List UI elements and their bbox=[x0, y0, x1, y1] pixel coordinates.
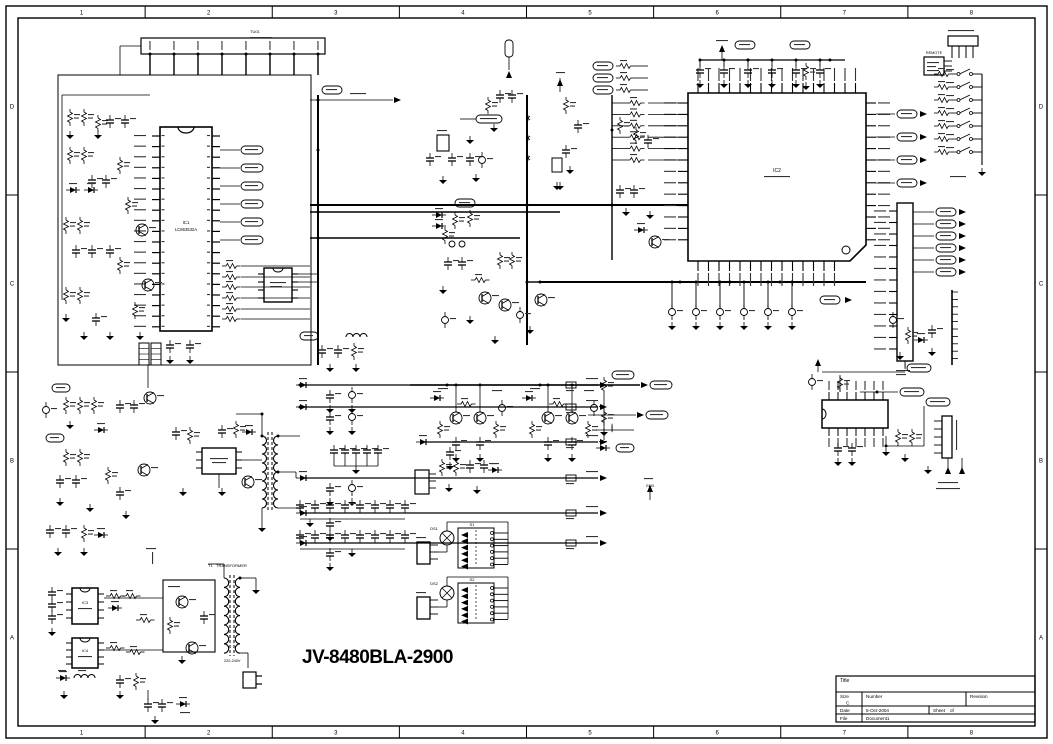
psu-ic4: IC4 bbox=[66, 638, 104, 668]
output-stage-block-1 bbox=[430, 384, 513, 463]
lamp-ds2-label: DS2 bbox=[430, 581, 439, 586]
ic3-ref: IC3 bbox=[82, 600, 89, 605]
mcu-ic1: IC1LC863532A bbox=[134, 127, 220, 331]
title-block: TitleSizeCNumberRevisionDate5-Oct-2004Sh… bbox=[836, 676, 1035, 722]
tuner-module: TU01 bbox=[141, 29, 325, 75]
border-row-right: B bbox=[1039, 459, 1043, 465]
size-value: C bbox=[846, 701, 850, 707]
bus-lines bbox=[310, 86, 866, 365]
border-row-left: A bbox=[10, 636, 14, 642]
switch-s1-label: S1 bbox=[470, 522, 476, 527]
output-stage-block-2 bbox=[522, 384, 605, 463]
qfp-top-parts bbox=[696, 40, 845, 90]
number-label: Number bbox=[866, 694, 883, 699]
qfp-left-parts bbox=[612, 95, 678, 260]
qfp-bottom-caps bbox=[668, 281, 852, 331]
ic4-ref: IC4 bbox=[82, 648, 89, 653]
schematic-drawing: 1122334455667788DDCCBBAATitleSizeCNumber… bbox=[0, 0, 1053, 744]
file-value: Document1 bbox=[866, 716, 890, 721]
gnd-flag-label: GND bbox=[646, 484, 655, 488]
border-row-right: A bbox=[1039, 636, 1043, 642]
av-jack-1: DS1S1 bbox=[416, 522, 508, 570]
border-col-bottom: 8 bbox=[970, 731, 974, 737]
size-label: Size bbox=[840, 694, 849, 699]
av-jack-2: DS2S2 bbox=[416, 577, 508, 625]
front-panel: REMOTE bbox=[924, 30, 986, 177]
border-col-bottom: 3 bbox=[334, 731, 338, 737]
schematic-page: 1122334455667788DDCCBBAATitleSizeCNumber… bbox=[0, 0, 1053, 744]
mcu-section: TU01IC1LC863532A bbox=[58, 29, 325, 365]
date-value: 5-Oct-2004 bbox=[866, 708, 889, 713]
ic1-part: LC863532A bbox=[175, 227, 197, 232]
border-col-top: 6 bbox=[716, 11, 720, 17]
border-col-bottom: 1 bbox=[80, 731, 84, 737]
border-col-top: 3 bbox=[334, 11, 338, 17]
pin-header bbox=[139, 343, 161, 365]
border-col-bottom: 4 bbox=[461, 731, 465, 737]
border-col-top: 7 bbox=[843, 11, 847, 17]
main-title-text: JV-8480BLA-2900 bbox=[302, 647, 453, 668]
remote-receiver: REMOTE bbox=[924, 51, 952, 75]
sheet-label: Sheet bbox=[933, 708, 946, 713]
switch-s2-label: S2 bbox=[470, 577, 476, 582]
sheet-of-label: of bbox=[950, 708, 955, 713]
border-col-bottom: 2 bbox=[207, 731, 211, 737]
output-stage-lower bbox=[415, 459, 502, 494]
border-col-bottom: 7 bbox=[843, 731, 847, 737]
border-col-bottom: 6 bbox=[716, 731, 720, 737]
net-labels-ic1 bbox=[220, 146, 310, 322]
mains-plug bbox=[243, 672, 262, 688]
main-ic2-qfp: IC2 bbox=[664, 68, 890, 286]
border-row-right: C bbox=[1039, 282, 1044, 288]
ic2-ref: IC2 bbox=[773, 168, 781, 174]
file-label: File bbox=[840, 716, 848, 721]
border-col-top: 8 bbox=[970, 11, 974, 17]
key-switches bbox=[934, 68, 986, 177]
border-row-left: C bbox=[10, 282, 15, 288]
border-col-bottom: 5 bbox=[588, 731, 592, 737]
psu-ic3: IC3 bbox=[66, 588, 104, 624]
net-flags: GND bbox=[596, 371, 654, 500]
junction-dots bbox=[261, 59, 888, 448]
main-title: JV-8480BLA-2900 bbox=[302, 647, 453, 668]
border-row-left: D bbox=[10, 105, 15, 111]
revision-label: Revision bbox=[970, 694, 988, 699]
border-col-top: 5 bbox=[588, 11, 592, 17]
border-col-top: 1 bbox=[80, 11, 84, 17]
psu-section: IC3IC4T1TRANSFORMER220-240V bbox=[48, 365, 262, 724]
audio-amp bbox=[809, 359, 966, 489]
smps-section bbox=[172, 378, 607, 571]
left-mid-section bbox=[43, 384, 165, 564]
border-row-left: B bbox=[10, 459, 14, 465]
border-col-top: 4 bbox=[461, 11, 465, 17]
title-label: Title bbox=[840, 678, 849, 684]
mains-transformer: T1TRANSFORMER220-240V bbox=[208, 563, 260, 668]
mains-voltage-label: 220-240V bbox=[224, 659, 241, 663]
date-label: Date bbox=[840, 708, 850, 713]
remote-label: REMOTE bbox=[926, 51, 943, 55]
border-col-top: 2 bbox=[207, 11, 211, 17]
smps-control-ic bbox=[172, 421, 262, 496]
tuner-ref: TU01 bbox=[250, 29, 261, 34]
border-row-right: D bbox=[1039, 105, 1044, 111]
output-stage bbox=[410, 381, 672, 462]
lamp-ds1-label: DS1 bbox=[430, 526, 439, 531]
ic1-ref: IC1 bbox=[183, 220, 190, 225]
eeprom-ic bbox=[258, 268, 318, 302]
